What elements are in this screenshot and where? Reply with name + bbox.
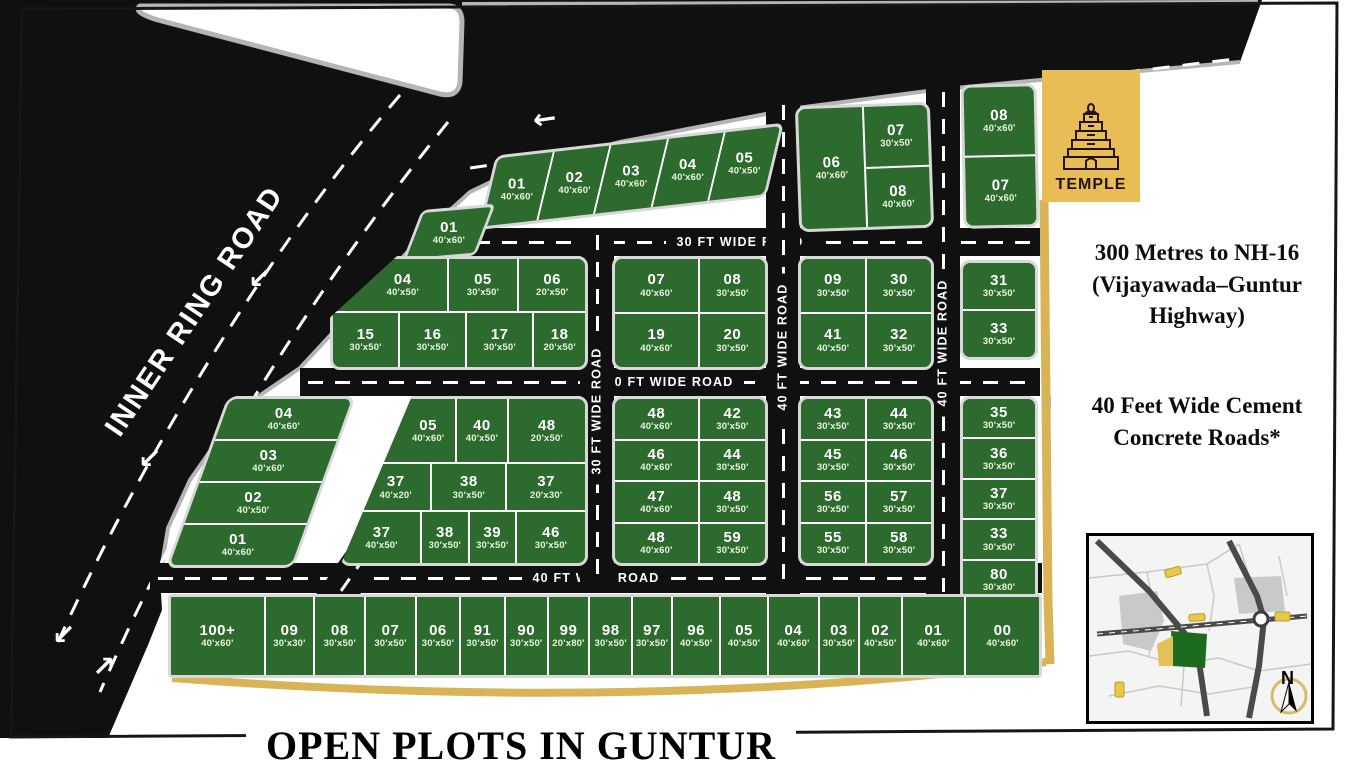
plot-size: 20'x30' xyxy=(530,491,562,502)
plot-size: 30'x80' xyxy=(983,583,1015,594)
plot-size: 30'x50' xyxy=(716,505,748,516)
plot-number: 59 xyxy=(724,529,742,546)
svg-text:↙: ↙ xyxy=(248,262,271,295)
plot-number: 09 xyxy=(281,622,299,639)
plot-43: 4330'x50' xyxy=(801,399,865,439)
plot-number: 45 xyxy=(824,446,842,463)
svg-text:↙: ↙ xyxy=(138,442,161,475)
plot-04: 0440'x60' xyxy=(767,597,818,675)
plot-size: 40'x60' xyxy=(985,194,1018,206)
plot-size: 30'x50' xyxy=(983,337,1015,348)
plot-number: 90 xyxy=(517,622,535,639)
plot-size: 30'x50' xyxy=(983,543,1015,554)
plot-size: 40'x50' xyxy=(387,288,419,299)
plot-00: 0040'x60' xyxy=(964,597,1039,675)
plot-20: 2030'x50' xyxy=(698,314,765,367)
svg-text:↗: ↗ xyxy=(92,650,115,683)
plot-size: 30'x50' xyxy=(817,463,849,474)
plot-number: 09 xyxy=(824,271,842,288)
plot-16: 1630'x50' xyxy=(398,313,465,367)
plot-size: 30'x50' xyxy=(983,462,1015,473)
plot-number: 05 xyxy=(474,271,492,288)
plot-48: 4830'x50' xyxy=(698,482,765,522)
plot-size: 40'x50' xyxy=(728,639,760,650)
plot-size: 30'x50' xyxy=(883,344,915,355)
plot-59: 5930'x50' xyxy=(698,524,765,564)
plot-size: 20'x50' xyxy=(543,343,575,354)
plot-size: 30'x50' xyxy=(983,502,1015,513)
plot-39: 3930'x50' xyxy=(468,512,515,563)
plot-number: 37 xyxy=(373,524,391,541)
plot-size: 40'x60' xyxy=(201,639,233,650)
plot-size: 30'x50' xyxy=(636,639,668,650)
plot-47: 4740'x60' xyxy=(615,482,698,522)
plot-48: 4840'x60' xyxy=(615,399,698,439)
plot-number: 03 xyxy=(830,622,848,639)
plot-37: 3730'x50' xyxy=(963,478,1035,518)
plot-size: 40'x50' xyxy=(237,506,269,517)
block-bottom-strip: 100+40'x60'0930'x30'0830'x50'0730'x50'06… xyxy=(168,594,1042,678)
plot-number: 91 xyxy=(474,622,492,639)
info-distance-text: 300 Metres to NH-16 (Vijayawada–Guntur H… xyxy=(1052,237,1342,332)
plot-number: 16 xyxy=(424,326,442,343)
plot-size: 30'x50' xyxy=(817,505,849,516)
plot-row: 0440'x50'0530'x50'0620'x50' xyxy=(359,259,585,311)
plot-size: 30'x50' xyxy=(880,139,913,151)
plot-07: 0740'x60' xyxy=(965,154,1036,225)
svg-text:←: ← xyxy=(531,101,559,137)
plot-number: 80 xyxy=(990,566,1008,583)
svg-text:↙: ↙ xyxy=(52,618,75,651)
plot-99: 9920'x80' xyxy=(547,597,589,675)
plot-number: 33 xyxy=(990,320,1008,337)
plot-07: 0730'x50' xyxy=(364,597,414,675)
gold-arrow-icon xyxy=(1042,395,1051,407)
plot-number: 20 xyxy=(724,326,742,343)
plot-size: 30'x50' xyxy=(883,422,915,433)
plot-19: 1940'x60' xyxy=(615,314,698,367)
plot-row: 4840'x60'5930'x50' xyxy=(615,522,765,564)
plot-size: 40'x50' xyxy=(729,167,761,178)
plot-size: 40'x60' xyxy=(640,505,672,516)
plot-size: 30'x50' xyxy=(466,639,498,650)
plot-size: 30'x50' xyxy=(817,546,849,557)
plot-size: 30'x50' xyxy=(716,463,748,474)
plot-size: 30'x50' xyxy=(535,541,567,552)
temple-marker: TEMPLE xyxy=(1042,70,1140,202)
road-label: 30 FT WIDE ROAD xyxy=(589,337,605,484)
plot-30: 3030'x50' xyxy=(865,259,931,312)
plot-number: 48 xyxy=(724,488,742,505)
plot-42: 4230'x50' xyxy=(698,399,765,439)
inset-roundabout xyxy=(1254,612,1268,626)
plot-number: 08 xyxy=(331,622,349,639)
plot-size: 30'x50' xyxy=(983,421,1015,432)
plot-size: 30'x50' xyxy=(324,639,356,650)
plot-number: 37 xyxy=(990,485,1008,502)
plot-number: 58 xyxy=(890,529,908,546)
plot-number: 03 xyxy=(622,162,640,179)
plot-size: 30'x50' xyxy=(510,639,542,650)
plot-number: 04 xyxy=(679,156,697,173)
plot-row: 4530'x50'4630'x50' xyxy=(801,439,931,481)
plot-size: 40'x60' xyxy=(640,344,672,355)
plot-number: 47 xyxy=(648,488,666,505)
plot-06: 0620'x50' xyxy=(517,259,585,311)
plot-size: 30'x50' xyxy=(883,546,915,557)
plot-size: 20'x80' xyxy=(552,639,584,650)
plot-46: 4640'x60' xyxy=(615,441,698,481)
plot-size: 30'x50' xyxy=(883,289,915,300)
temple-a-right-column: 07 30'x50' 08 40'x60' xyxy=(861,105,931,227)
plot-size: 30'x50' xyxy=(716,344,748,355)
plot-number: 37 xyxy=(387,473,405,490)
plot-row: 5630'x50'5730'x50' xyxy=(801,480,931,522)
plot-38: 3830'x50' xyxy=(430,464,505,510)
plot-size: 30'x50' xyxy=(374,639,406,650)
block-row3-right: 4330'x50'4430'x50'4530'x50'4630'x50'5630… xyxy=(798,396,934,566)
plot-number: 44 xyxy=(724,446,742,463)
plot-size: 40'x60' xyxy=(983,124,1016,136)
inset-map-drawing: N xyxy=(1089,536,1311,721)
plot-91: 9130'x50' xyxy=(459,597,504,675)
plot-layout-map: ← → ↓ ↑ ↓ ↑ ↙ ↙ ↙ ↗ ↗ INNER RING ROAD 30… xyxy=(0,0,1365,768)
plot-number: 48 xyxy=(538,417,556,434)
block-row3-far: 3530'x50'3630'x50'3730'x50'3330'x50'8030… xyxy=(960,396,1038,602)
plot-01: 0140'x60' xyxy=(901,597,965,675)
plot-size: 30'x30' xyxy=(273,639,305,650)
plot-56: 5630'x50' xyxy=(801,482,865,522)
plot-row: 4740'x60'4830'x50' xyxy=(615,480,765,522)
plot-size: 20'x50' xyxy=(536,288,568,299)
plot-41: 4140'x50' xyxy=(801,314,865,367)
plot-number: 97 xyxy=(643,622,661,639)
plot-number: 05 xyxy=(735,622,753,639)
plot-size: 40'x60' xyxy=(640,463,672,474)
plot-08: 0830'x50' xyxy=(313,597,364,675)
plot-number: 99 xyxy=(560,622,578,639)
plot-size: 30'x50' xyxy=(716,289,748,300)
plot-size: 30'x50' xyxy=(429,541,461,552)
plot-45: 4530'x50' xyxy=(801,441,865,481)
plot-46: 4630'x50' xyxy=(865,441,931,481)
block-temple-a: 06 40'x60' 07 30'x50' 08 40'x60' xyxy=(795,102,934,233)
block-row3-mid: 4840'x60'4230'x50'4640'x60'4430'x50'4740… xyxy=(612,396,768,566)
plot-number: 05 xyxy=(736,149,754,166)
plot-number: 42 xyxy=(724,405,742,422)
plot-number: 04 xyxy=(394,271,412,288)
plot-number: 57 xyxy=(890,488,908,505)
info-panel: 300 Metres to NH-16 (Vijayawada–Guntur H… xyxy=(1052,237,1342,454)
block-row2-right: 0930'x50'3030'x50'4140'x50'3230'x50' xyxy=(798,256,934,370)
plot-number: 01 xyxy=(925,622,943,639)
plot-number: 46 xyxy=(890,446,908,463)
plot-98: 9830'x50' xyxy=(588,597,631,675)
plot-row: 4640'x60'4430'x50' xyxy=(615,439,765,481)
plot-06: 0630'x50' xyxy=(415,597,460,675)
plot-90: 9030'x50' xyxy=(504,597,547,675)
plot-37: 3720'x30' xyxy=(505,464,585,510)
plot-09: 0930'x30' xyxy=(264,597,313,675)
block-temple-b: 0840'x60'0740'x60' xyxy=(961,83,1040,229)
plot-size: 20'x50' xyxy=(531,434,563,445)
plot-58: 5830'x50' xyxy=(865,524,931,564)
road-label: 30 FT WIDE ROAD xyxy=(596,374,743,390)
plot-number: 07 xyxy=(382,622,400,639)
plot-size: 40'x60' xyxy=(640,289,672,300)
plot-number: 07 xyxy=(992,177,1010,195)
plot-number: 43 xyxy=(824,405,842,422)
plot-size: 30'x50' xyxy=(484,343,516,354)
plot-04: 0440'x60' xyxy=(215,399,352,439)
plot-08: 08 40'x60' xyxy=(866,165,932,227)
plot-number: 46 xyxy=(542,524,560,541)
plot-size: 40'x60' xyxy=(917,639,949,650)
plot-row: 0740'x60'0830'x50' xyxy=(615,259,765,312)
plot-size: 30'x50' xyxy=(983,289,1015,300)
plot-row: 1530'x50'1630'x50'1730'x50'1820'x50' xyxy=(333,311,585,367)
plot-size: 40'x60' xyxy=(222,548,254,559)
plot-17: 1730'x50' xyxy=(465,313,532,367)
plot-number: 04 xyxy=(785,622,803,639)
compass-n-label: N xyxy=(1281,668,1294,688)
plot-size: 40'x50' xyxy=(680,639,712,650)
plot-48: 4840'x60' xyxy=(615,524,698,564)
plot-row: 3740'x50'3830'x50'3930'x50'4630'x50' xyxy=(343,510,585,563)
plot-32: 3230'x50' xyxy=(865,314,931,367)
plot-05: 0540'x60' xyxy=(401,399,455,462)
plot-100+: 100+40'x60' xyxy=(171,597,264,675)
block-row2-mid: 0740'x60'0830'x50'1940'x60'2030'x50' xyxy=(612,256,768,370)
plot-44: 4430'x50' xyxy=(865,399,931,439)
inset-site-gold xyxy=(1157,636,1173,666)
plot-number: 19 xyxy=(648,326,666,343)
plot-number: 33 xyxy=(990,525,1008,542)
plot-row: 4140'x50'3230'x50' xyxy=(801,312,931,367)
plot-row: 5530'x50'5830'x50' xyxy=(801,522,931,564)
plot-size: 40'x50' xyxy=(864,639,896,650)
plot-size: 30'x50' xyxy=(883,463,915,474)
plot-number: 41 xyxy=(824,326,842,343)
plot-number: 02 xyxy=(871,622,889,639)
plot-05: 0530'x50' xyxy=(447,259,518,311)
plot-size: 40'x60' xyxy=(986,639,1018,650)
plot-size: 40'x60' xyxy=(640,422,672,433)
plot-size: 40'x60' xyxy=(252,464,284,475)
plot-row: 3740'x20'3830'x50'3720'x30' xyxy=(361,462,585,510)
page-title-text: OPEN PLOTS IN GUNTUR xyxy=(246,723,796,768)
plot-size: 40'x60' xyxy=(615,179,647,190)
plot-size: 40'x20' xyxy=(380,491,412,502)
plot-number: 55 xyxy=(824,529,842,546)
plot-number: 48 xyxy=(648,529,666,546)
plot-size: 30'x50' xyxy=(595,639,627,650)
plot-row: 4330'x50'4430'x50' xyxy=(801,399,931,439)
plot-number: 00 xyxy=(994,622,1012,639)
plot-size: 40'x50' xyxy=(365,541,397,552)
plot-size: 40'x60' xyxy=(816,171,849,183)
block-row2-far: 3130'x50'3330'x50' xyxy=(960,260,1038,360)
plot-33: 3330'x50' xyxy=(963,518,1035,558)
plot-03: 0330'x50' xyxy=(818,597,858,675)
plot-size: 40'x60' xyxy=(640,546,672,557)
plot-05: 0540'x50' xyxy=(719,597,766,675)
plot-number: 08 xyxy=(889,183,907,201)
inset-site-green xyxy=(1171,631,1207,668)
plot-07: 07 30'x50' xyxy=(863,105,929,168)
plot-number: 38 xyxy=(460,473,478,490)
plot-number: 06 xyxy=(543,271,561,288)
road-label: 40 FT WIDE ROAD xyxy=(935,269,951,416)
plot-01: 0140'x60' xyxy=(169,523,306,565)
plot-number: 04 xyxy=(275,405,293,422)
plot-02: 0240'x50' xyxy=(858,597,901,675)
plot-number: 44 xyxy=(890,405,908,422)
inset-location-map: N xyxy=(1086,533,1314,724)
plot-size: 40'x60' xyxy=(412,434,444,445)
plot-number: 56 xyxy=(824,488,842,505)
plot-number: 40 xyxy=(473,417,491,434)
plot-number: 06 xyxy=(429,622,447,639)
plot-number: 01 xyxy=(440,219,458,236)
plot-31: 3130'x50' xyxy=(963,263,1035,309)
plot-row: 1940'x60'2030'x50' xyxy=(615,312,765,367)
plot-size: 40'x50' xyxy=(466,434,498,445)
road-label: 40 FT WIDE ROAD xyxy=(775,273,791,420)
plot-number: 96 xyxy=(687,622,705,639)
plot-97: 9730'x50' xyxy=(631,597,671,675)
plot-35: 3530'x50' xyxy=(963,399,1035,437)
plot-number: 02 xyxy=(244,489,262,506)
plot-row: 0930'x50'3030'x50' xyxy=(801,259,931,312)
plot-number: 31 xyxy=(990,272,1008,289)
plot-size: 40'x60' xyxy=(777,639,809,650)
plot-size: 40'x60' xyxy=(501,192,533,203)
plot-18: 1820'x50' xyxy=(532,313,585,367)
plot-number: 17 xyxy=(491,326,509,343)
plot-number: 08 xyxy=(724,271,742,288)
plot-number: 38 xyxy=(436,524,454,541)
plot-15: 1530'x50' xyxy=(333,313,398,367)
plot-08: 0840'x60' xyxy=(964,86,1035,155)
plot-38: 3830'x50' xyxy=(420,512,467,563)
plot-size: 30'x50' xyxy=(467,288,499,299)
plot-02: 0240'x50' xyxy=(185,481,322,523)
plot-07: 0740'x60' xyxy=(615,259,698,312)
page-title: OPEN PLOTS IN GUNTUR xyxy=(0,722,1042,768)
temple-label: TEMPLE xyxy=(1056,176,1127,194)
plot-size: 30'x50' xyxy=(883,505,915,516)
plot-size: 30'x50' xyxy=(422,639,454,650)
plot-size: 30'x50' xyxy=(716,546,748,557)
plot-number: 46 xyxy=(648,446,666,463)
plot-size: 30'x50' xyxy=(823,639,855,650)
plot-08: 0830'x50' xyxy=(698,259,765,312)
plot-55: 5530'x50' xyxy=(801,524,865,564)
plot-size: 30'x50' xyxy=(453,491,485,502)
plot-number: 39 xyxy=(483,524,501,541)
plot-96: 9640'x50' xyxy=(671,597,719,675)
plot-number: 01 xyxy=(508,175,526,192)
plot-size: 30'x50' xyxy=(349,343,381,354)
plot-size: 30'x50' xyxy=(817,422,849,433)
plot-number: 05 xyxy=(419,417,437,434)
plot-33: 3330'x50' xyxy=(963,309,1035,357)
plot-size: 40'x60' xyxy=(558,186,590,197)
plot-06: 06 40'x60' xyxy=(798,107,866,229)
plot-size: 40'x60' xyxy=(672,173,704,184)
plot-size: 30'x50' xyxy=(817,289,849,300)
compass: N xyxy=(1272,668,1306,713)
plot-number: 30 xyxy=(890,271,908,288)
plot-number: 98 xyxy=(602,622,620,639)
plot-36: 3630'x50' xyxy=(963,437,1035,477)
plot-03: 0340'x60' xyxy=(200,439,337,481)
info-roads-text: 40 Feet Wide Cement Concrete Roads* xyxy=(1052,390,1342,453)
plot-number: 48 xyxy=(648,405,666,422)
temple-gopuram-icon xyxy=(1062,102,1120,176)
plot-46: 4630'x50' xyxy=(515,512,585,563)
plot-number: 37 xyxy=(537,473,555,490)
plot-80: 8030'x80' xyxy=(963,559,1035,599)
plot-number: 06 xyxy=(822,154,840,172)
plot-57: 5730'x50' xyxy=(865,482,931,522)
plot-size: 40'x60' xyxy=(267,422,299,433)
plot-size: 40'x50' xyxy=(817,344,849,355)
plot-number: 15 xyxy=(357,326,375,343)
plot-size: 30'x50' xyxy=(476,541,508,552)
plot-number: 36 xyxy=(990,445,1008,462)
plot-09: 0930'x50' xyxy=(801,259,865,312)
plot-40: 4040'x50' xyxy=(455,399,506,462)
plot-48: 4820'x50' xyxy=(507,399,585,462)
plot-size: 30'x50' xyxy=(416,343,448,354)
plot-number: 03 xyxy=(260,447,278,464)
plot-number: 32 xyxy=(890,326,908,343)
plot-row: 4840'x60'4230'x50' xyxy=(615,399,765,439)
plot-size: 30'x50' xyxy=(716,422,748,433)
plot-number: 01 xyxy=(229,531,247,548)
plot-number: 35 xyxy=(990,404,1008,421)
plot-size: 40'x60' xyxy=(882,200,915,212)
plot-number: 18 xyxy=(551,326,569,343)
plot-44: 4430'x50' xyxy=(698,441,765,481)
plot-number: 07 xyxy=(648,271,666,288)
plot-number: 08 xyxy=(990,107,1008,125)
plot-size: 40'x60' xyxy=(433,236,465,247)
plot-number: 07 xyxy=(887,122,905,140)
plot-number: 100+ xyxy=(199,622,235,639)
plot-row: 0540'x60'4040'x50'4820'x50' xyxy=(401,399,585,462)
plot-number: 02 xyxy=(565,169,583,186)
